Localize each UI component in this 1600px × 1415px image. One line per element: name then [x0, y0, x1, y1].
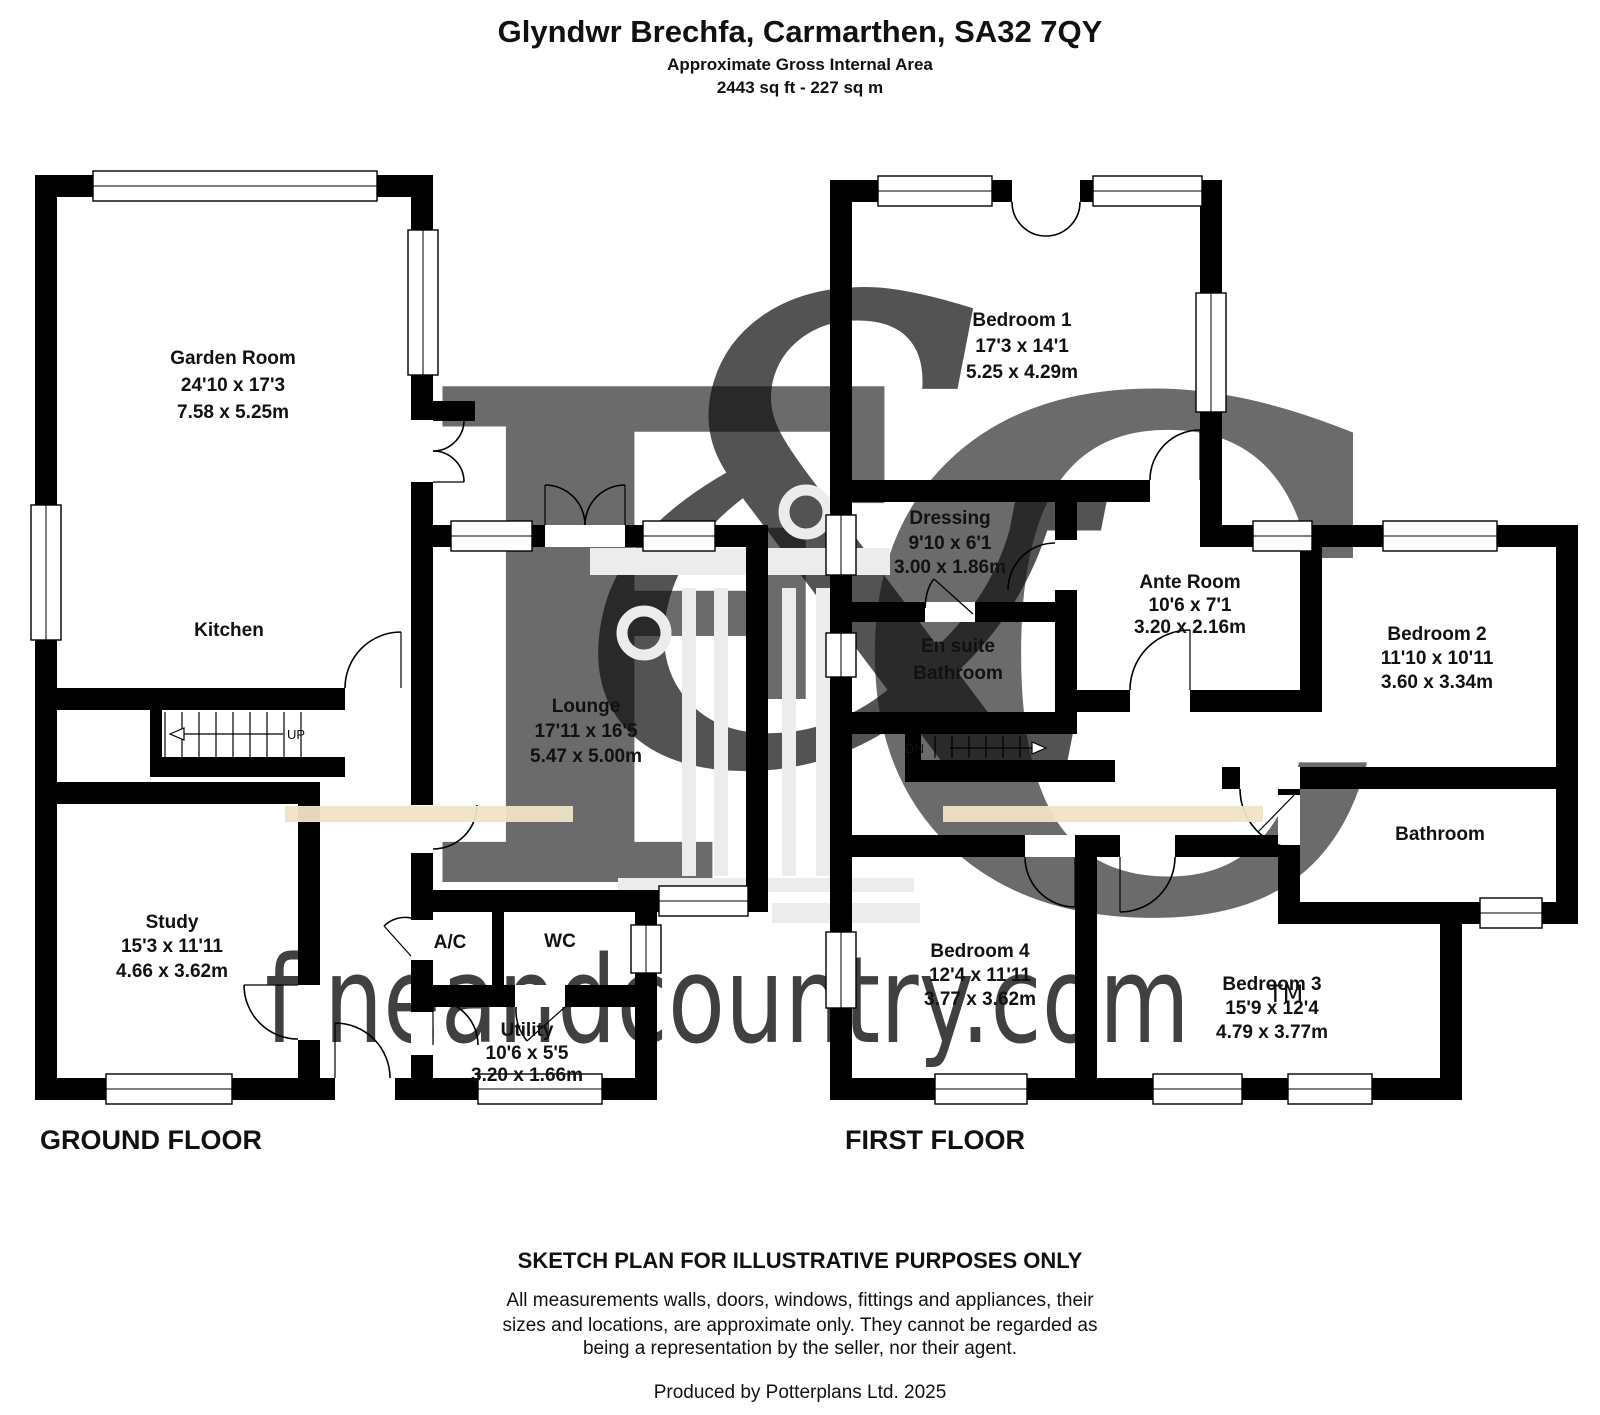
room-label: WC [544, 931, 576, 952]
column-stripe [682, 588, 696, 876]
room-dims-ft: 10'6 x 7'1 [1149, 595, 1232, 616]
window [1196, 293, 1226, 412]
wall [1300, 547, 1322, 712]
window [31, 505, 61, 640]
window [451, 521, 532, 551]
wall [492, 912, 504, 985]
room-dims-m: 7.58 x 5.25m [177, 402, 289, 423]
window [408, 230, 438, 375]
wall [746, 525, 768, 912]
window [878, 176, 992, 206]
room-dims-ft: 11'10 x 10'11 [1381, 648, 1494, 669]
room-dims-ft: 10'6 x 5'5 [486, 1043, 569, 1064]
room-label: Bedroom 2 [1387, 624, 1486, 645]
room-dims-ft: 17'11 x 16'5 [534, 721, 638, 742]
wall [150, 757, 345, 777]
door-arc [345, 632, 401, 688]
wall [430, 401, 475, 421]
door-opening [1025, 835, 1075, 857]
room-dims-ft: 17'3 x 14'1 [975, 336, 1069, 357]
stairs-arrowhead [170, 728, 184, 740]
room-dims-ft: 24'10 x 17'3 [181, 375, 285, 396]
room-dims-m: 5.25 x 4.29m [966, 362, 1078, 383]
room-dims-m: 3.20 x 2.16m [1134, 617, 1246, 638]
floorplan-canvas: Glyndwr Brechfa, Carmarthen, SA32 7QY Ap… [0, 0, 1600, 1415]
floorplan-page: Glyndwr Brechfa, Carmarthen, SA32 7QY Ap… [0, 0, 1600, 1415]
ground-floor-stairs: UP [165, 712, 305, 757]
window [659, 886, 748, 916]
room-dims-m: 3.00 x 1.86m [894, 557, 1006, 578]
window [1253, 521, 1312, 551]
ground-floor-title: GROUND FLOOR [40, 1125, 262, 1155]
door-opening [411, 1012, 433, 1055]
column-stripe [782, 588, 796, 876]
door-opening [411, 920, 433, 960]
window [106, 1074, 232, 1104]
window [1153, 1074, 1242, 1104]
door-opening [1150, 480, 1200, 502]
window [826, 932, 856, 1008]
window [93, 171, 377, 201]
wall [150, 710, 162, 757]
room-label: Lounge [552, 696, 621, 717]
room-dims-m: 3.77 x 3.62m [924, 989, 1036, 1010]
window [643, 521, 715, 551]
wall [1556, 525, 1578, 924]
wall [905, 760, 1115, 782]
room-label: Bedroom 3 [1222, 974, 1321, 995]
room-label: Kitchen [194, 620, 264, 641]
footer-produced-by: Produced by Potterplans Ltd. 2025 [654, 1382, 947, 1403]
wall [35, 688, 345, 710]
room-label: Utility [501, 1020, 554, 1041]
window [631, 925, 661, 973]
watermark-band [943, 806, 1263, 822]
wall [1077, 690, 1322, 712]
stairs-direction-label: DN [905, 741, 924, 756]
window [826, 633, 856, 677]
room-label: Study [146, 912, 199, 933]
door-opening [545, 525, 625, 547]
room-dims-m: 5.47 x 5.00m [530, 746, 642, 767]
door-opening [925, 602, 975, 622]
window [1093, 176, 1202, 206]
room-dims-ft: 15'9 x 12'4 [1225, 998, 1319, 1019]
room-dims-m: 4.79 x 3.77m [1216, 1022, 1328, 1043]
door-opening [411, 420, 433, 482]
watermark-site-text: fineandcountry.com [265, 932, 1190, 1071]
footer: SKETCH PLAN FOR ILLUSTRATIVE PURPOSES ON… [503, 1248, 1098, 1403]
room-label: Bedroom 1 [972, 310, 1072, 331]
footer-notice: SKETCH PLAN FOR ILLUSTRATIVE PURPOSES ON… [518, 1248, 1083, 1273]
footer-disclaimer-line: All measurements walls, doors, windows, … [506, 1290, 1094, 1311]
room-dims-m: 3.60 x 3.34m [1381, 672, 1493, 693]
door-opening [1130, 690, 1190, 712]
room-dims-m: 3.20 x 1.66m [471, 1065, 583, 1086]
wall [298, 782, 320, 1100]
wall [35, 782, 320, 804]
window [1288, 1074, 1372, 1104]
room-label: Garden Room [170, 348, 296, 369]
room-label: En suite [921, 636, 995, 657]
door-arc [384, 917, 411, 926]
door-opening [1120, 835, 1175, 857]
door-opening [298, 985, 320, 1040]
door-opening [1012, 180, 1080, 202]
room-label: Bedroom 4 [930, 941, 1030, 962]
stairs-direction-label: UP [287, 727, 305, 742]
window [826, 515, 856, 575]
window [935, 1074, 1027, 1104]
page-subtitle: Approximate Gross Internal Area [667, 55, 933, 74]
door-opening [335, 1078, 395, 1100]
room-dims-ft: 12'4 x 11'11 [929, 965, 1031, 986]
room-dims-ft: 9'10 x 6'1 [909, 533, 992, 554]
door-opening [1055, 540, 1077, 590]
wall [1440, 913, 1462, 1100]
first-floor-title: FIRST FLOOR [845, 1125, 1025, 1155]
header: Glyndwr Brechfa, Carmarthen, SA32 7QY Ap… [498, 14, 1103, 97]
page-title: Glyndwr Brechfa, Carmarthen, SA32 7QY [498, 14, 1103, 49]
door-opening [1240, 767, 1300, 789]
room-dims-ft: 15'3 x 11'11 [121, 936, 223, 957]
room-label: Dressing [909, 508, 990, 529]
footer-disclaimer-line: being a representation by the seller, no… [583, 1338, 1017, 1359]
door-opening [1278, 795, 1300, 845]
room-label: Ante Room [1139, 572, 1240, 593]
door-opening [515, 985, 565, 1007]
window [1383, 521, 1497, 551]
watermark-band [285, 806, 573, 822]
wall [852, 712, 1077, 734]
window [1480, 898, 1542, 928]
room-label: Bathroom [1395, 824, 1485, 845]
column-stripe [816, 588, 830, 876]
footer-disclaimer-line: sizes and locations, are approximate onl… [503, 1315, 1098, 1336]
room-label: Bathroom [913, 663, 1003, 684]
room-label: A/C [434, 932, 467, 953]
column-stripe [714, 588, 728, 876]
wall [852, 480, 1150, 502]
room-dims-m: 4.66 x 3.62m [116, 961, 228, 982]
wall [1075, 835, 1097, 1078]
page-area: 2443 sq ft - 227 sq m [717, 78, 883, 97]
